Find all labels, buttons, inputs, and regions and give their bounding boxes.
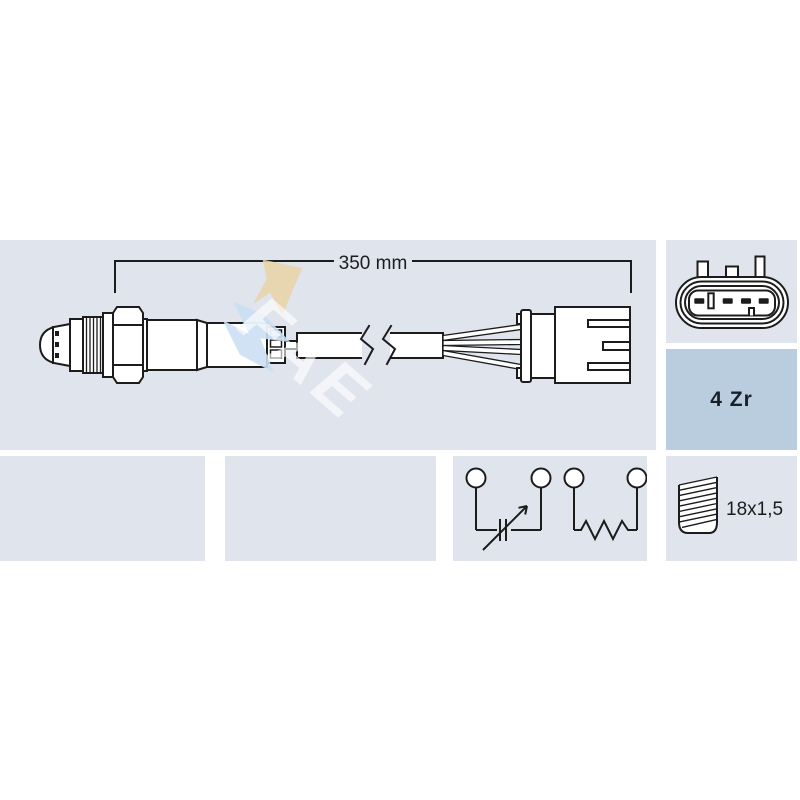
connector-plug [517,307,630,383]
cable-crimp [267,327,297,363]
thread-size-label: 18x1,5 [726,499,783,521]
dimension-label: 350 mm [339,253,408,274]
sensor-drawing-panel: 350 mm [0,240,656,450]
empty-spec-panel-2 [225,456,436,561]
hex-nut [113,307,143,383]
sensor-cell-symbol-icon [467,469,551,551]
empty-spec-panel-1 [0,456,205,561]
sensor-body-rear [143,319,267,371]
heater-symbol-icon [565,469,647,540]
sensor-type-panel: 4 Zr [666,349,797,450]
thread-spec-panel: 18x1,5 [666,456,797,561]
connector-face-icon [666,240,797,343]
sensor-tip [40,324,70,366]
connector-face-panel [666,240,797,343]
circuit-symbols-icon [453,456,647,561]
product-diagram-page: 350 mm [0,0,800,800]
circuit-diagram-panel [453,456,647,561]
wires [443,325,521,370]
cable [297,326,443,366]
oxygen-sensor-drawing: 350 mm [0,240,656,450]
sensor-type-label: 4 Zr [710,388,753,412]
sensor-body-front [70,313,113,377]
